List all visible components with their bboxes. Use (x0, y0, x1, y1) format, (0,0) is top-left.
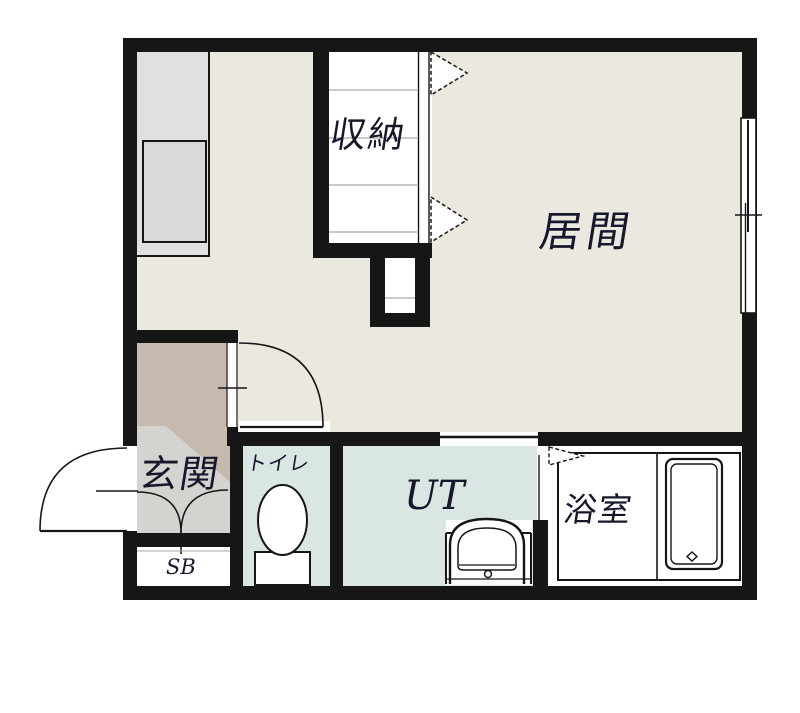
shoe-box-label: SB (166, 557, 196, 578)
wall-toilet-utility (330, 432, 343, 600)
hall-door-threshold (239, 421, 330, 432)
toilet-label: トイレ (245, 453, 311, 473)
wall-utility-bath-stub (533, 520, 548, 586)
entrance-door-swing-icon (40, 448, 138, 531)
utility-door-threshold (440, 440, 538, 446)
entrance-door-opening (127, 446, 137, 531)
hall-door-opening (227, 343, 238, 427)
wall-outer-bottom (123, 586, 757, 600)
floor-plan: 居間 収納 玄関 トイレ UT 浴室 SB (0, 0, 800, 713)
wall-hall-top (130, 330, 238, 343)
wall-shoebox-top (123, 533, 230, 547)
living-room-label: 居間 (537, 211, 638, 253)
wall-pipe-space-bottom (370, 313, 430, 327)
living-room-floor (137, 52, 742, 330)
kitchen-sink-unit (142, 140, 207, 243)
wall-outer-right (742, 38, 757, 600)
wall-genkan-toilet (230, 443, 243, 600)
pipe-space-floor (385, 258, 415, 313)
entrance-label: 玄関 (137, 455, 223, 493)
living-room-floor-lower (238, 330, 742, 432)
wall-outer-top (123, 38, 757, 52)
closet-label: 収納 (327, 118, 409, 154)
bathroom-label: 浴室 (561, 493, 634, 526)
utility-label: UT (404, 476, 464, 516)
wall-interior-east (538, 432, 743, 446)
wall-outer-left-upper (123, 38, 137, 446)
